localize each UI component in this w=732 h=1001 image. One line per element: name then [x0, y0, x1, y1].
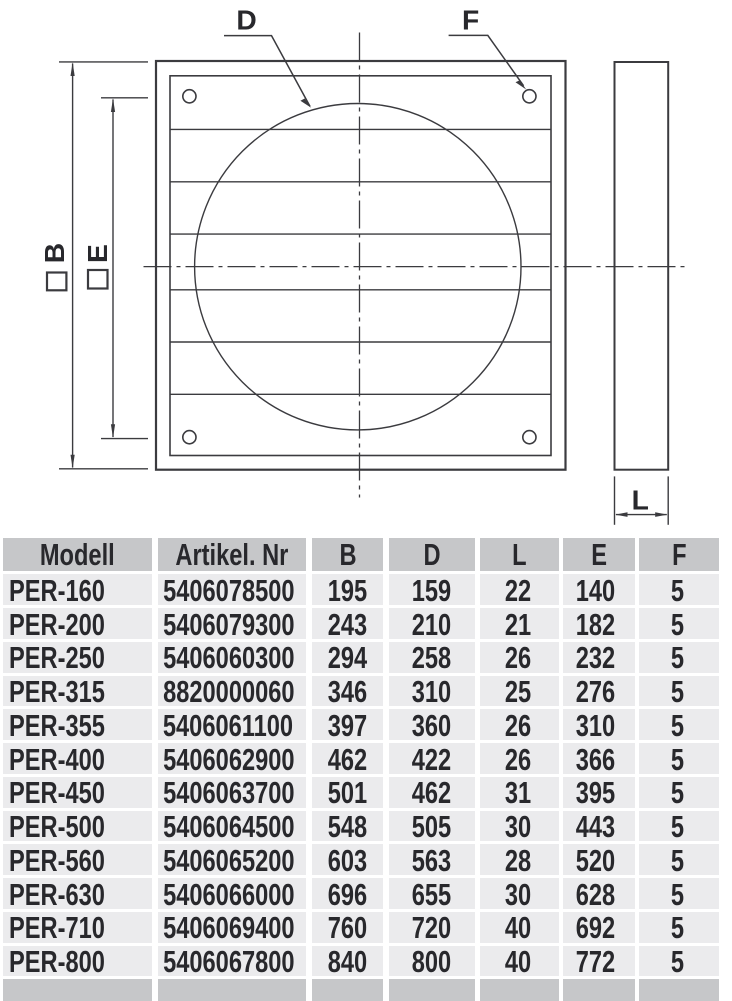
- svg-text:D: D: [236, 4, 256, 36]
- svg-text:E: E: [81, 244, 113, 263]
- svg-text:L: L: [632, 483, 649, 515]
- svg-text:B: B: [38, 243, 70, 263]
- svg-text:F: F: [462, 3, 479, 35]
